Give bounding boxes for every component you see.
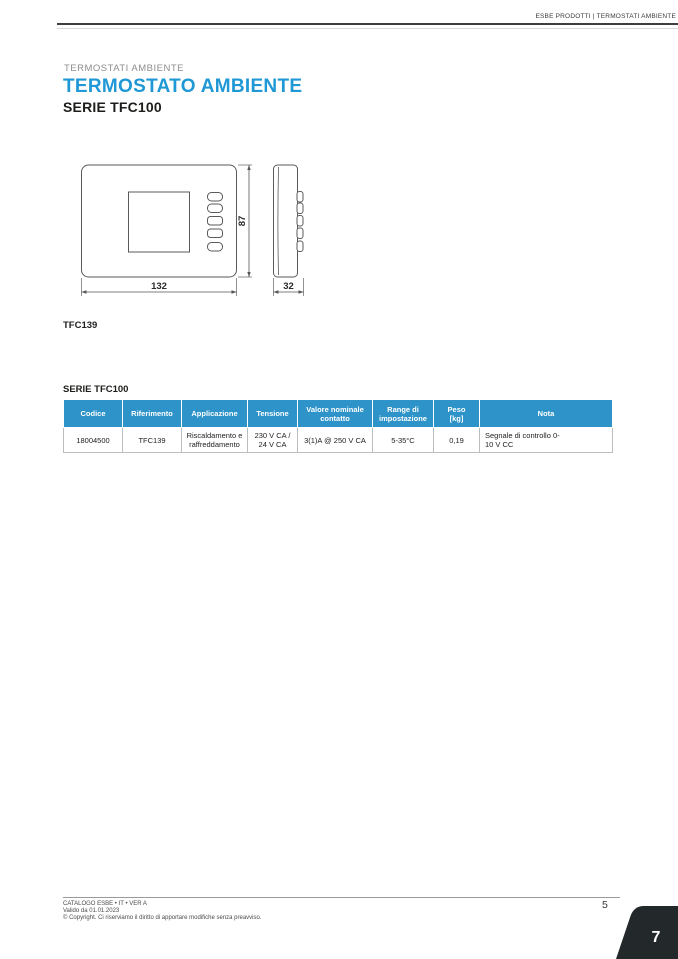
- table-header-cell: Range di impostazione: [373, 400, 434, 428]
- model-label: TFC139: [63, 320, 97, 331]
- technical-drawing: 87 132 32: [55, 148, 315, 306]
- arrowhead-icon: [274, 290, 279, 293]
- dimension-height-label: 87: [237, 216, 248, 227]
- arrowhead-icon: [299, 290, 304, 293]
- header-rule-shadow: [57, 28, 678, 29]
- table-header-cell: Riferimento: [123, 400, 182, 428]
- table-cell: Segnale di controllo 0-10 V CC: [480, 428, 613, 453]
- series-subtitle: SERIE TFC100: [63, 99, 162, 115]
- arrowhead-icon: [232, 290, 237, 293]
- header-rule: [57, 23, 678, 25]
- section-eyebrow: TERMOSTATI AMBIENTE: [64, 63, 184, 74]
- thermostat-button: [208, 229, 223, 238]
- side-button: [297, 192, 303, 203]
- side-button: [297, 228, 303, 239]
- thermostat-side-view: [274, 165, 298, 277]
- thermostat-button: [208, 204, 223, 213]
- thermostat-button: [208, 217, 223, 226]
- table-cell: 3(1)A @ 250 V CA: [298, 428, 373, 453]
- footer-valid-line: Valido da 01.01.2023: [63, 908, 262, 915]
- thermostat-display: [129, 192, 190, 252]
- chapter-tab: 7: [610, 905, 678, 959]
- side-button: [297, 241, 303, 252]
- thermostat-button: [208, 193, 223, 202]
- table-row: 18004500 TFC139 Riscaldamento e raffredd…: [64, 428, 613, 453]
- footer-catalog-line: CATALOGO ESBE • IT • VER A: [63, 901, 262, 908]
- footer-info: CATALOGO ESBE • IT • VER A Valido da 01.…: [63, 901, 262, 922]
- arrowhead-icon: [247, 272, 250, 277]
- table-header-cell: Nota: [480, 400, 613, 428]
- chapter-tab-shape: [616, 906, 678, 959]
- thermostat-button: [208, 243, 223, 252]
- table-cell: 0,19: [434, 428, 480, 453]
- table-header-cell: Codice: [64, 400, 123, 428]
- table-caption: SERIE TFC100: [63, 384, 128, 395]
- table-header-cell: Applicazione: [182, 400, 248, 428]
- arrowhead-icon: [82, 290, 87, 293]
- nota-text: Segnale di controllo 0-10 V CC: [485, 431, 567, 449]
- catalog-page: ESBE PRODOTTI | TERMOSTATI AMBIENTE TERM…: [0, 0, 678, 959]
- table-cell: 5-35°C: [373, 428, 434, 453]
- table-cell: 230 V CA / 24 V CA: [248, 428, 298, 453]
- page-number: 5: [602, 899, 608, 911]
- table-header-cell: Peso [kg]: [434, 400, 480, 428]
- footer-copyright-line: © Copyright. Ci riserviamo il diritto di…: [63, 915, 262, 922]
- table-header-row: Codice Riferimento Applicazione Tensione…: [64, 400, 613, 428]
- spec-table: Codice Riferimento Applicazione Tensione…: [63, 399, 613, 453]
- table-header-cell: Valore nominale contatto: [298, 400, 373, 428]
- dimension-depth-label: 32: [283, 281, 294, 292]
- arrowhead-icon: [247, 165, 250, 170]
- table-cell: TFC139: [123, 428, 182, 453]
- breadcrumb: ESBE PRODOTTI | TERMOSTATI AMBIENTE: [535, 13, 676, 20]
- table-cell: 18004500: [64, 428, 123, 453]
- table-header-cell: Tensione: [248, 400, 298, 428]
- dimension-width-label: 132: [151, 281, 167, 292]
- table-cell: Riscaldamento e raffreddamento: [182, 428, 248, 453]
- side-button: [297, 203, 303, 214]
- side-button: [297, 216, 303, 227]
- page-title: TERMOSTATO AMBIENTE: [63, 76, 302, 98]
- chapter-tab-number: 7: [652, 929, 661, 946]
- footer-rule: [63, 897, 620, 898]
